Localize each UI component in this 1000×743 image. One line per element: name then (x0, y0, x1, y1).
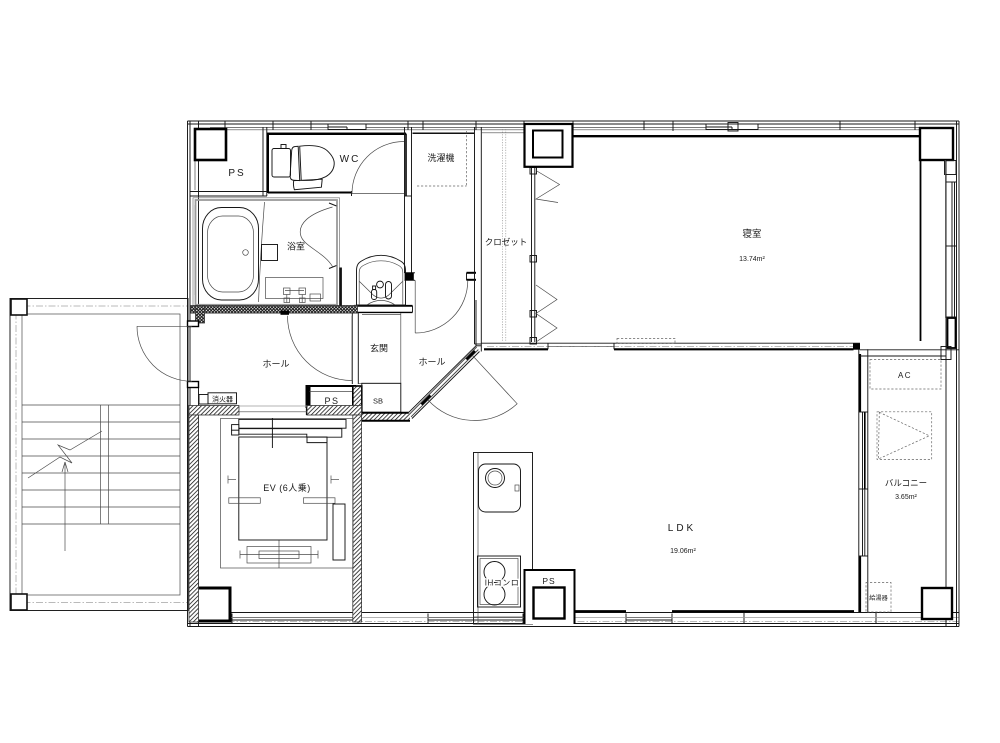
svg-text:給湯器: 給湯器 (869, 594, 888, 602)
svg-text:ホール: ホール (418, 357, 445, 367)
svg-text:クロゼット: クロゼット (485, 237, 528, 247)
svg-text:EV (6人乗): EV (6人乗) (263, 482, 311, 493)
svg-text:AC: AC (898, 371, 912, 380)
svg-text:浴室: 浴室 (287, 241, 305, 252)
svg-text:WC: WC (340, 154, 361, 165)
svg-text:バルコニー: バルコニー (885, 478, 927, 488)
svg-text:13.74m²: 13.74m² (739, 256, 765, 263)
svg-text:IHコンロ: IHコンロ (485, 579, 520, 588)
svg-text:PS: PS (542, 576, 555, 586)
svg-text:19.06m²: 19.06m² (670, 548, 696, 555)
svg-text:ホール: ホール (262, 359, 289, 369)
svg-text:SB: SB (373, 397, 383, 406)
svg-text:玄関: 玄関 (370, 343, 388, 354)
svg-text:3.65m²: 3.65m² (895, 494, 917, 501)
svg-text:洗濯機: 洗濯機 (427, 152, 454, 163)
svg-text:PS: PS (324, 396, 339, 406)
svg-text:LDK: LDK (668, 523, 696, 534)
svg-text:寝室: 寝室 (742, 228, 761, 240)
svg-text:消火器: 消火器 (212, 395, 233, 404)
svg-text:PS: PS (228, 168, 245, 179)
